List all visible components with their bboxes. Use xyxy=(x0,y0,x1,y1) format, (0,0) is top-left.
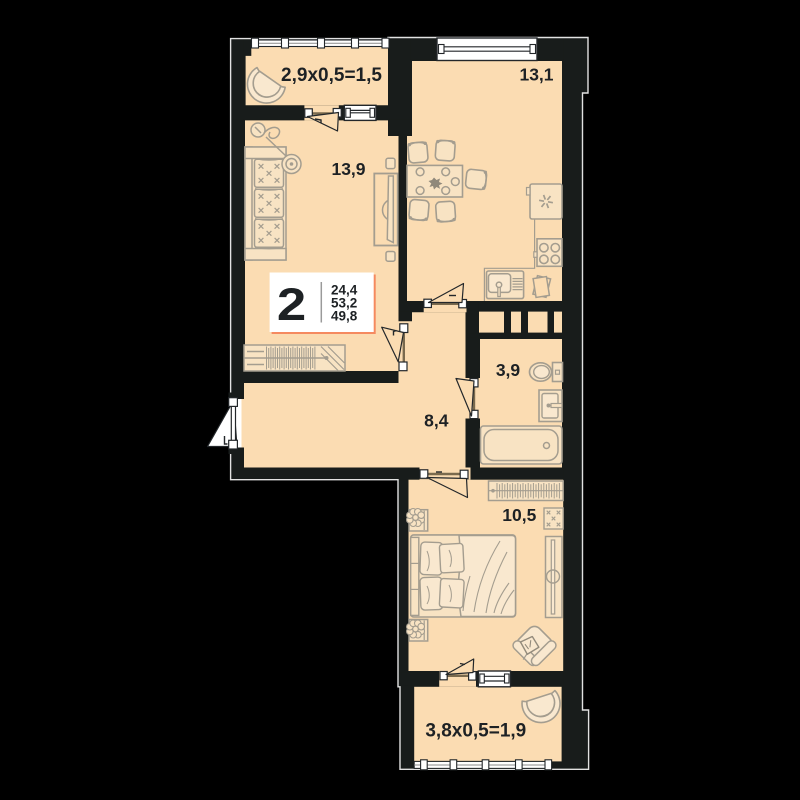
svg-text:2,9х0,5=1,5: 2,9х0,5=1,5 xyxy=(281,65,382,86)
svg-text:8,4: 8,4 xyxy=(424,410,449,430)
svg-text:10,5: 10,5 xyxy=(502,505,536,525)
svg-text:13,1: 13,1 xyxy=(519,65,553,85)
svg-text:2: 2 xyxy=(277,279,306,330)
svg-text:13,9: 13,9 xyxy=(331,159,365,179)
svg-text:49,8: 49,8 xyxy=(331,309,358,324)
svg-text:3,9: 3,9 xyxy=(496,360,521,380)
svg-text:3,8х0,5=1,9: 3,8х0,5=1,9 xyxy=(425,721,526,742)
